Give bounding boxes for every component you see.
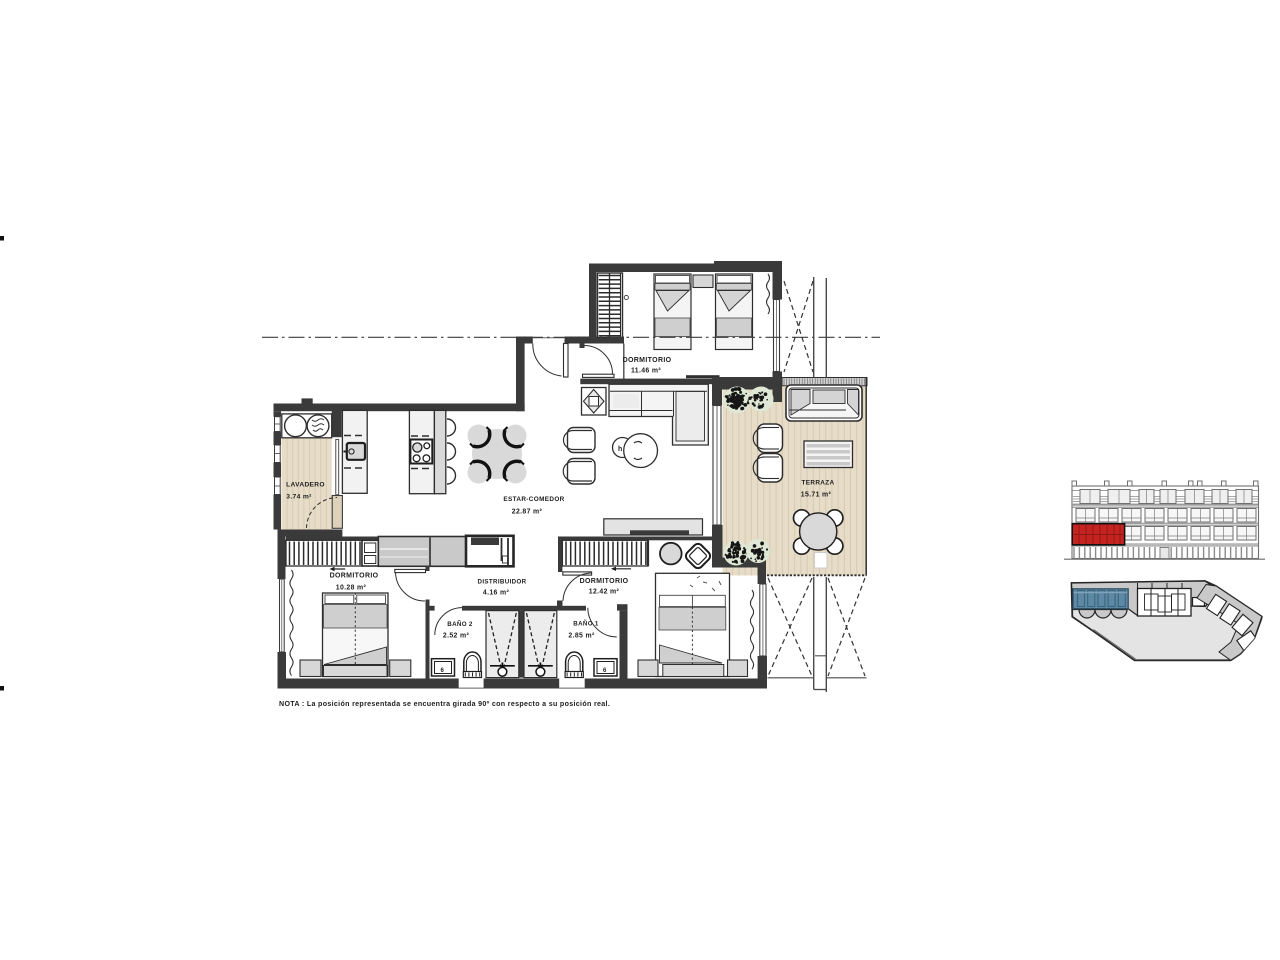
svg-text:4.16 m²: 4.16 m² [483, 590, 510, 597]
svg-text:DORMITORIO: DORMITORIO [330, 573, 379, 580]
svg-text:BAÑO 1: BAÑO 1 [573, 621, 599, 628]
svg-text:BAÑO 2: BAÑO 2 [447, 621, 473, 628]
svg-text:15.71 m²: 15.71 m² [801, 492, 832, 499]
svg-text:TERRAZA: TERRAZA [802, 480, 835, 487]
svg-text:11.46 m²: 11.46 m² [631, 368, 661, 375]
svg-text:DORMITORIO: DORMITORIO [623, 357, 672, 364]
svg-text:DISTRIBUIDOR: DISTRIBUIDOR [478, 579, 527, 586]
svg-text:h: h [618, 446, 622, 453]
svg-text:2.52 m²: 2.52 m² [443, 633, 470, 640]
svg-text:LAVADERO: LAVADERO [286, 482, 325, 489]
svg-text:NOTA : La posición representad: NOTA : La posición representada se encue… [279, 700, 610, 708]
svg-text:2.85 m²: 2.85 m² [568, 633, 595, 640]
svg-text:22.87 m²: 22.87 m² [512, 509, 543, 516]
svg-text:3.74 m²: 3.74 m² [286, 494, 312, 501]
svg-text:ESTAR-COMEDOR: ESTAR-COMEDOR [503, 496, 564, 503]
svg-text:12.42 m²: 12.42 m² [589, 589, 620, 596]
svg-text:DORMITORIO: DORMITORIO [580, 578, 629, 585]
svg-text:10.28 m²: 10.28 m² [336, 585, 367, 592]
